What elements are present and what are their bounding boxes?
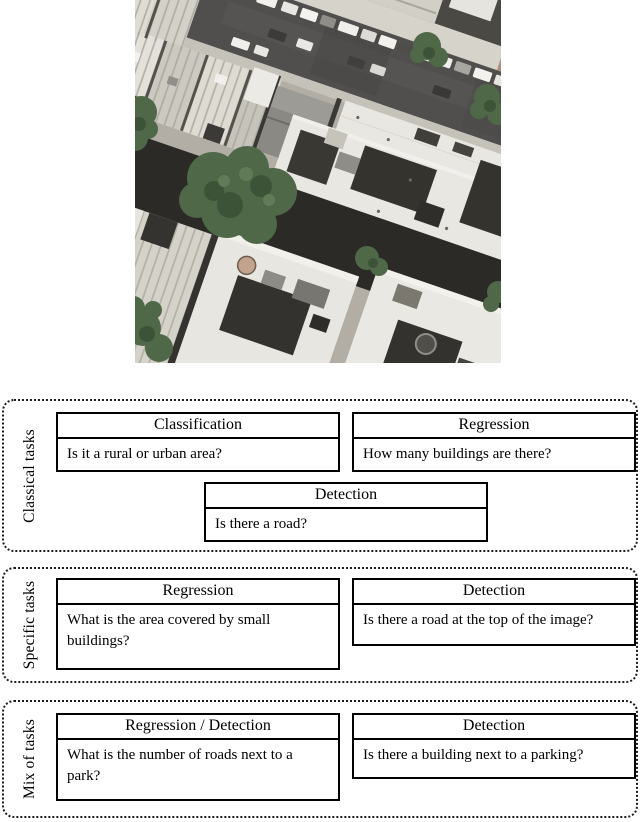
task-box-question: Is there a building next to a parking?: [354, 740, 634, 766]
task-box-header: Regression: [58, 580, 338, 605]
task-box-regression-detection: Regression / Detection What is the numbe…: [56, 713, 340, 801]
paper-figure: Classical tasks Classification Is it a r…: [0, 0, 640, 822]
task-row: Regression / Detection What is the numbe…: [56, 713, 636, 801]
task-box-detection: Detection Is there a road at the top of …: [352, 578, 636, 646]
task-box-classification: Classification Is it a rural or urban ar…: [56, 412, 340, 472]
group-label-specific: Specific tasks: [21, 581, 39, 669]
aerial-image-container: [135, 0, 501, 363]
task-box-header: Detection: [354, 715, 634, 740]
task-box-question: What is the number of roads next to a pa…: [58, 740, 338, 787]
group-label-wrap: Mix of tasks: [4, 702, 56, 816]
task-box-header: Regression / Detection: [58, 715, 338, 740]
group-label-wrap: Classical tasks: [4, 401, 56, 550]
task-box-header: Classification: [58, 414, 338, 439]
task-group-specific: Specific tasks Regression What is the ar…: [2, 567, 638, 683]
group-body: Regression / Detection What is the numbe…: [56, 702, 636, 816]
task-box-header: Detection: [354, 580, 634, 605]
task-box-detection: Detection Is there a building next to a …: [352, 713, 636, 779]
task-box-detection: Detection Is there a road?: [204, 482, 488, 542]
aerial-image: [135, 0, 501, 363]
task-box-question: Is there a road?: [206, 509, 486, 535]
task-row: Classification Is it a rural or urban ar…: [56, 412, 636, 472]
task-box-header: Detection: [206, 484, 486, 509]
task-row: Detection Is there a road?: [204, 482, 636, 542]
task-box-regression: Regression How many buildings are there?: [352, 412, 636, 472]
task-group-mix: Mix of tasks Regression / Detection What…: [2, 700, 638, 818]
group-label-mix: Mix of tasks: [21, 719, 39, 799]
task-box-regression: Regression What is the area covered by s…: [56, 578, 340, 670]
task-row: Regression What is the area covered by s…: [56, 578, 636, 670]
task-group-classical: Classical tasks Classification Is it a r…: [2, 399, 638, 552]
group-body: Regression What is the area covered by s…: [56, 569, 636, 681]
task-box-question: Is it a rural or urban area?: [58, 439, 338, 465]
group-label-wrap: Specific tasks: [4, 569, 56, 681]
group-body: Classification Is it a rural or urban ar…: [56, 401, 636, 550]
task-box-question: Is there a road at the top of the image?: [354, 605, 634, 631]
task-box-header: Regression: [354, 414, 634, 439]
group-label-classical: Classical tasks: [21, 429, 39, 523]
task-box-question: How many buildings are there?: [354, 439, 634, 465]
task-box-question: What is the area covered by small buildi…: [58, 605, 338, 652]
